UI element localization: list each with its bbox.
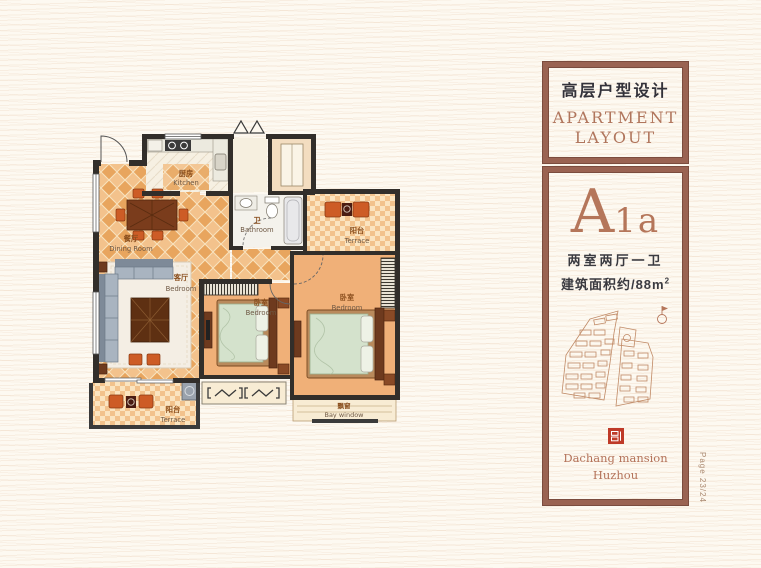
sofa-back (115, 259, 173, 267)
dresser (294, 321, 301, 357)
room-label-terrace-tr-en: Terrace (344, 237, 370, 245)
sofa-top (115, 267, 173, 279)
room-label-living-cn: 客厅 (173, 273, 188, 282)
room-label-bay-cn: 飘窗 (338, 401, 352, 410)
terrace-chair (353, 202, 369, 217)
basin (240, 199, 252, 208)
unit-letter: A (571, 182, 614, 242)
mattress (310, 314, 368, 374)
title-frame: 高层户型设计 APARTMENT LAYOUT (543, 62, 688, 163)
room-label-dining-en: Dining Room (109, 245, 153, 253)
washing-machine (182, 381, 197, 400)
brand-text: Dachang mansion Huzhou (563, 450, 667, 485)
unit-rooms-spec: 两室两厅一卫 (567, 250, 663, 269)
room-label-terrace-bl-cn: 阳台 (166, 405, 180, 414)
panel-title-en-line2: LAYOUT (553, 128, 679, 148)
room-label-bedroom-r-en: Bedroom (332, 304, 363, 312)
sliding-door (137, 380, 173, 383)
room-label-bath-en: Bathroom (240, 226, 274, 234)
terrace-chair (109, 395, 123, 408)
brand-name: Dachang mansion (563, 450, 667, 467)
compass-icon (657, 306, 668, 324)
page-number-label: Page 23/24 (698, 452, 707, 503)
dachang-logo-icon (608, 428, 624, 444)
nightstand (278, 364, 289, 374)
floorplan-drawing: 厨房 Kitchen 餐厅 Dining Room 卫 Bathroom 客厅 … (85, 116, 427, 468)
unit-code: A 1a (571, 182, 660, 242)
unit-frame: A 1a 两室两厅一卫 建筑面积约/88m2 (543, 167, 688, 505)
headboard (375, 308, 384, 380)
toilet-tank (265, 197, 279, 203)
terrace-chair (325, 202, 341, 217)
room-label-dining-cn: 餐厅 (123, 234, 138, 243)
sliding-door (105, 378, 141, 381)
room-label-bedroom-r-cn: 卧室 (340, 293, 354, 302)
wardrobe (381, 258, 395, 308)
ottoman (129, 354, 142, 365)
terrace-chair (139, 395, 153, 408)
nightstand (384, 374, 395, 385)
brand-city: Huzhou (563, 467, 667, 484)
unit-area-spec: 建筑面积约/88m2 (561, 274, 670, 293)
ottoman (147, 354, 160, 365)
pillow (361, 346, 373, 372)
room-label-terrace-bl-en: Terrace (160, 416, 186, 424)
siteplan-map (554, 303, 678, 411)
unit-number: 1a (614, 204, 660, 238)
panel-title-en: APARTMENT LAYOUT (553, 108, 679, 148)
brochure-page: 厨房 Kitchen 餐厅 Dining Room 卫 Bathroom 客厅 … (0, 0, 761, 568)
room-label-kitchen-cn: 厨房 (179, 169, 193, 178)
entry-door-swing (101, 136, 127, 162)
siteplan-outline-right (616, 339, 653, 406)
entry-door-leaf (234, 121, 248, 133)
toilet (267, 204, 278, 218)
room-label-bedroom-m-en: Bedroom (246, 309, 277, 317)
siteplan-outline-left (562, 311, 618, 400)
siteplan-buildings (566, 314, 648, 402)
room-label-kitchen-en: Kitchen (173, 179, 199, 187)
nightstand (384, 310, 395, 321)
room-label-bay-en: Bay window (324, 411, 364, 419)
room-label-bath-cn: 卫 (253, 216, 260, 225)
room-label-bedroom-m-cn: 卧室 (254, 298, 268, 307)
siteplan-plot (618, 327, 636, 347)
room-label-living-en: Bedroom (166, 285, 197, 293)
fridge (148, 140, 162, 151)
panel-title-en-line1: APARTMENT (553, 108, 679, 128)
pillow (361, 316, 373, 342)
entry-door-leaf (250, 121, 264, 133)
kitchen-sink (215, 154, 226, 170)
panel-title-cn: 高层户型设计 (561, 77, 669, 101)
room-label-terrace-tr-cn: 阳台 (350, 226, 364, 235)
pillow (256, 335, 268, 360)
